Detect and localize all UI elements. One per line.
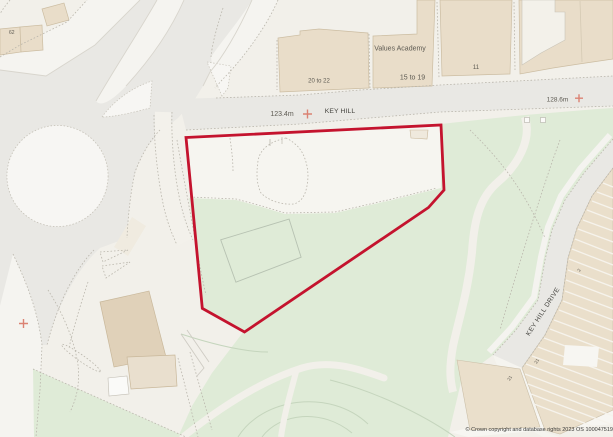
svg-text:Values Academy: Values Academy: [374, 46, 426, 53]
svg-text:20 to 22: 20 to 22: [308, 79, 330, 85]
svg-text:128.6m: 128.6m: [547, 97, 569, 104]
svg-text:KEY HILL: KEY HILL: [325, 108, 356, 115]
svg-text:© Crown copyright and database: © Crown copyright and database rights 20…: [466, 426, 613, 433]
svg-text:15 to 19: 15 to 19: [400, 75, 425, 82]
svg-text:123.4m: 123.4m: [270, 111, 294, 118]
svg-text:11: 11: [473, 65, 480, 71]
svg-text:62: 62: [9, 30, 15, 36]
